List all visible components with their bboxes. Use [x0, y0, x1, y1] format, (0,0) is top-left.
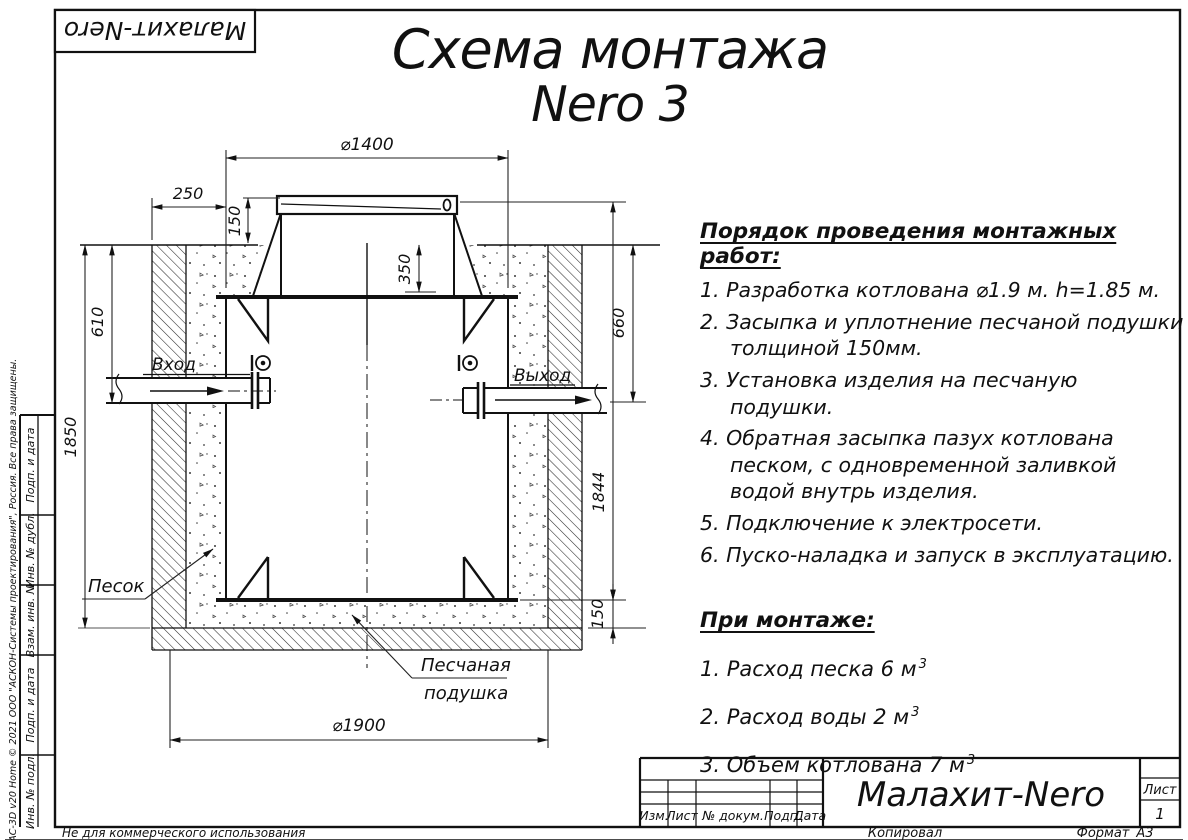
montage-items: 1. Расход песка 6 м3 2. Расход воды 2 м3…: [700, 657, 1184, 777]
instructions-panel: Порядок проведения монтажных работ: 1. Р…: [700, 219, 1184, 801]
dim-1844: 1844: [589, 472, 608, 513]
stamp-cell-vzam-inv: Взам. инв. №: [24, 583, 37, 658]
stamp-cell-podp-data-2: Подп. и дата: [24, 667, 37, 742]
sheet-title: Схема монтажа Nero 3: [310, 22, 910, 130]
instructions-heading: Порядок проведения монтажных работ:: [700, 219, 1184, 269]
montage-item-2-sup: 3: [911, 705, 919, 720]
col-list: Лист: [665, 808, 698, 823]
montage-heading: При монтаже:: [700, 608, 1184, 633]
montage-item-2-text: 2. Расход воды 2 м: [700, 705, 909, 729]
dim-250: 250: [173, 184, 204, 203]
format-label: Формат: [1077, 826, 1130, 840]
stamp-cell-inv-podl: Инв. № подл.: [24, 753, 37, 829]
col-data: Дата: [793, 808, 826, 823]
dim-660: 660: [609, 308, 628, 339]
stamp-cell-podp-data-1: Подп. и дата: [24, 427, 37, 502]
sand-label: Песок: [88, 576, 145, 597]
cushion-label-line1: Песчаная: [421, 655, 511, 676]
montage-item-3-sup: 3: [967, 753, 975, 768]
montage-item-3-text: 3. Объем котлована 7 м: [700, 753, 965, 777]
format-value: А3: [1135, 826, 1153, 840]
dim-610: 610: [88, 307, 107, 338]
col-ndokum: № докум.: [701, 808, 764, 823]
montage-item-1: 1. Расход песка 6 м3: [700, 657, 1184, 681]
copied-label: Копировал: [868, 826, 942, 840]
logo-box: Малахит-Nero: [55, 10, 255, 52]
montage-item-3: 3. Объем котлована 7 м3: [700, 753, 1184, 777]
stamp-cell-inv-dubl: Инв. № дубл.: [24, 512, 37, 587]
montage-item-1-sup: 3: [919, 657, 927, 672]
step-3: 3. Установка изделия на песчаную подушки…: [700, 367, 1184, 420]
sheet-title-line2: Nero 3: [310, 79, 910, 130]
montage-item-2: 2. Расход воды 2 м3: [700, 705, 1184, 729]
step-4: 4. Обратная засыпка пазух котлована песк…: [700, 425, 1184, 505]
kompas-license-text: КОМПАС-3D v20 Home © 2021 ООО "АСКОН-Сис…: [8, 359, 19, 840]
dim-1850: 1850: [61, 417, 80, 458]
inlet-label: Вход: [152, 355, 196, 375]
left-margin-strip: Подп. и дата Инв. № дубл. Взам. инв. № П…: [8, 359, 55, 840]
step-5: 5. Подключение к электросети.: [700, 510, 1184, 537]
sheet-number: 1: [1155, 805, 1165, 823]
step-6: 6. Пуско-наладка и запуск в эксплуатацию…: [700, 542, 1184, 569]
dim-350: 350: [395, 254, 414, 285]
step-1: 1. Разработка котлована ⌀1.9 м. h=1.85 м…: [700, 277, 1184, 304]
step-2: 2. Засыпка и уплотнение песчаной подушки…: [700, 309, 1184, 362]
dim-1900: ⌀1900: [332, 716, 386, 736]
dim-1400: ⌀1400: [340, 135, 394, 155]
col-izm: Изм.: [639, 808, 668, 823]
montage-item-1-text: 1. Расход песка 6 м: [700, 657, 917, 681]
outlet-label: Выход: [514, 366, 571, 386]
cushion-label-line2: подушка: [424, 683, 508, 704]
logo-text: Малахит-Nero: [64, 16, 246, 45]
dim-150-top: 150: [225, 206, 244, 237]
instructions-steps: 1. Разработка котлована ⌀1.9 м. h=1.85 м…: [700, 277, 1184, 568]
dim-150-bottom: 150: [588, 599, 607, 630]
sheet-title-line1: Схема монтажа: [310, 22, 910, 79]
drawing-sheet: { "logo": { "text": "Малахит-Nero" }, "t…: [0, 0, 1188, 840]
not-commercial-text: Не для коммерческого использования: [62, 826, 305, 840]
